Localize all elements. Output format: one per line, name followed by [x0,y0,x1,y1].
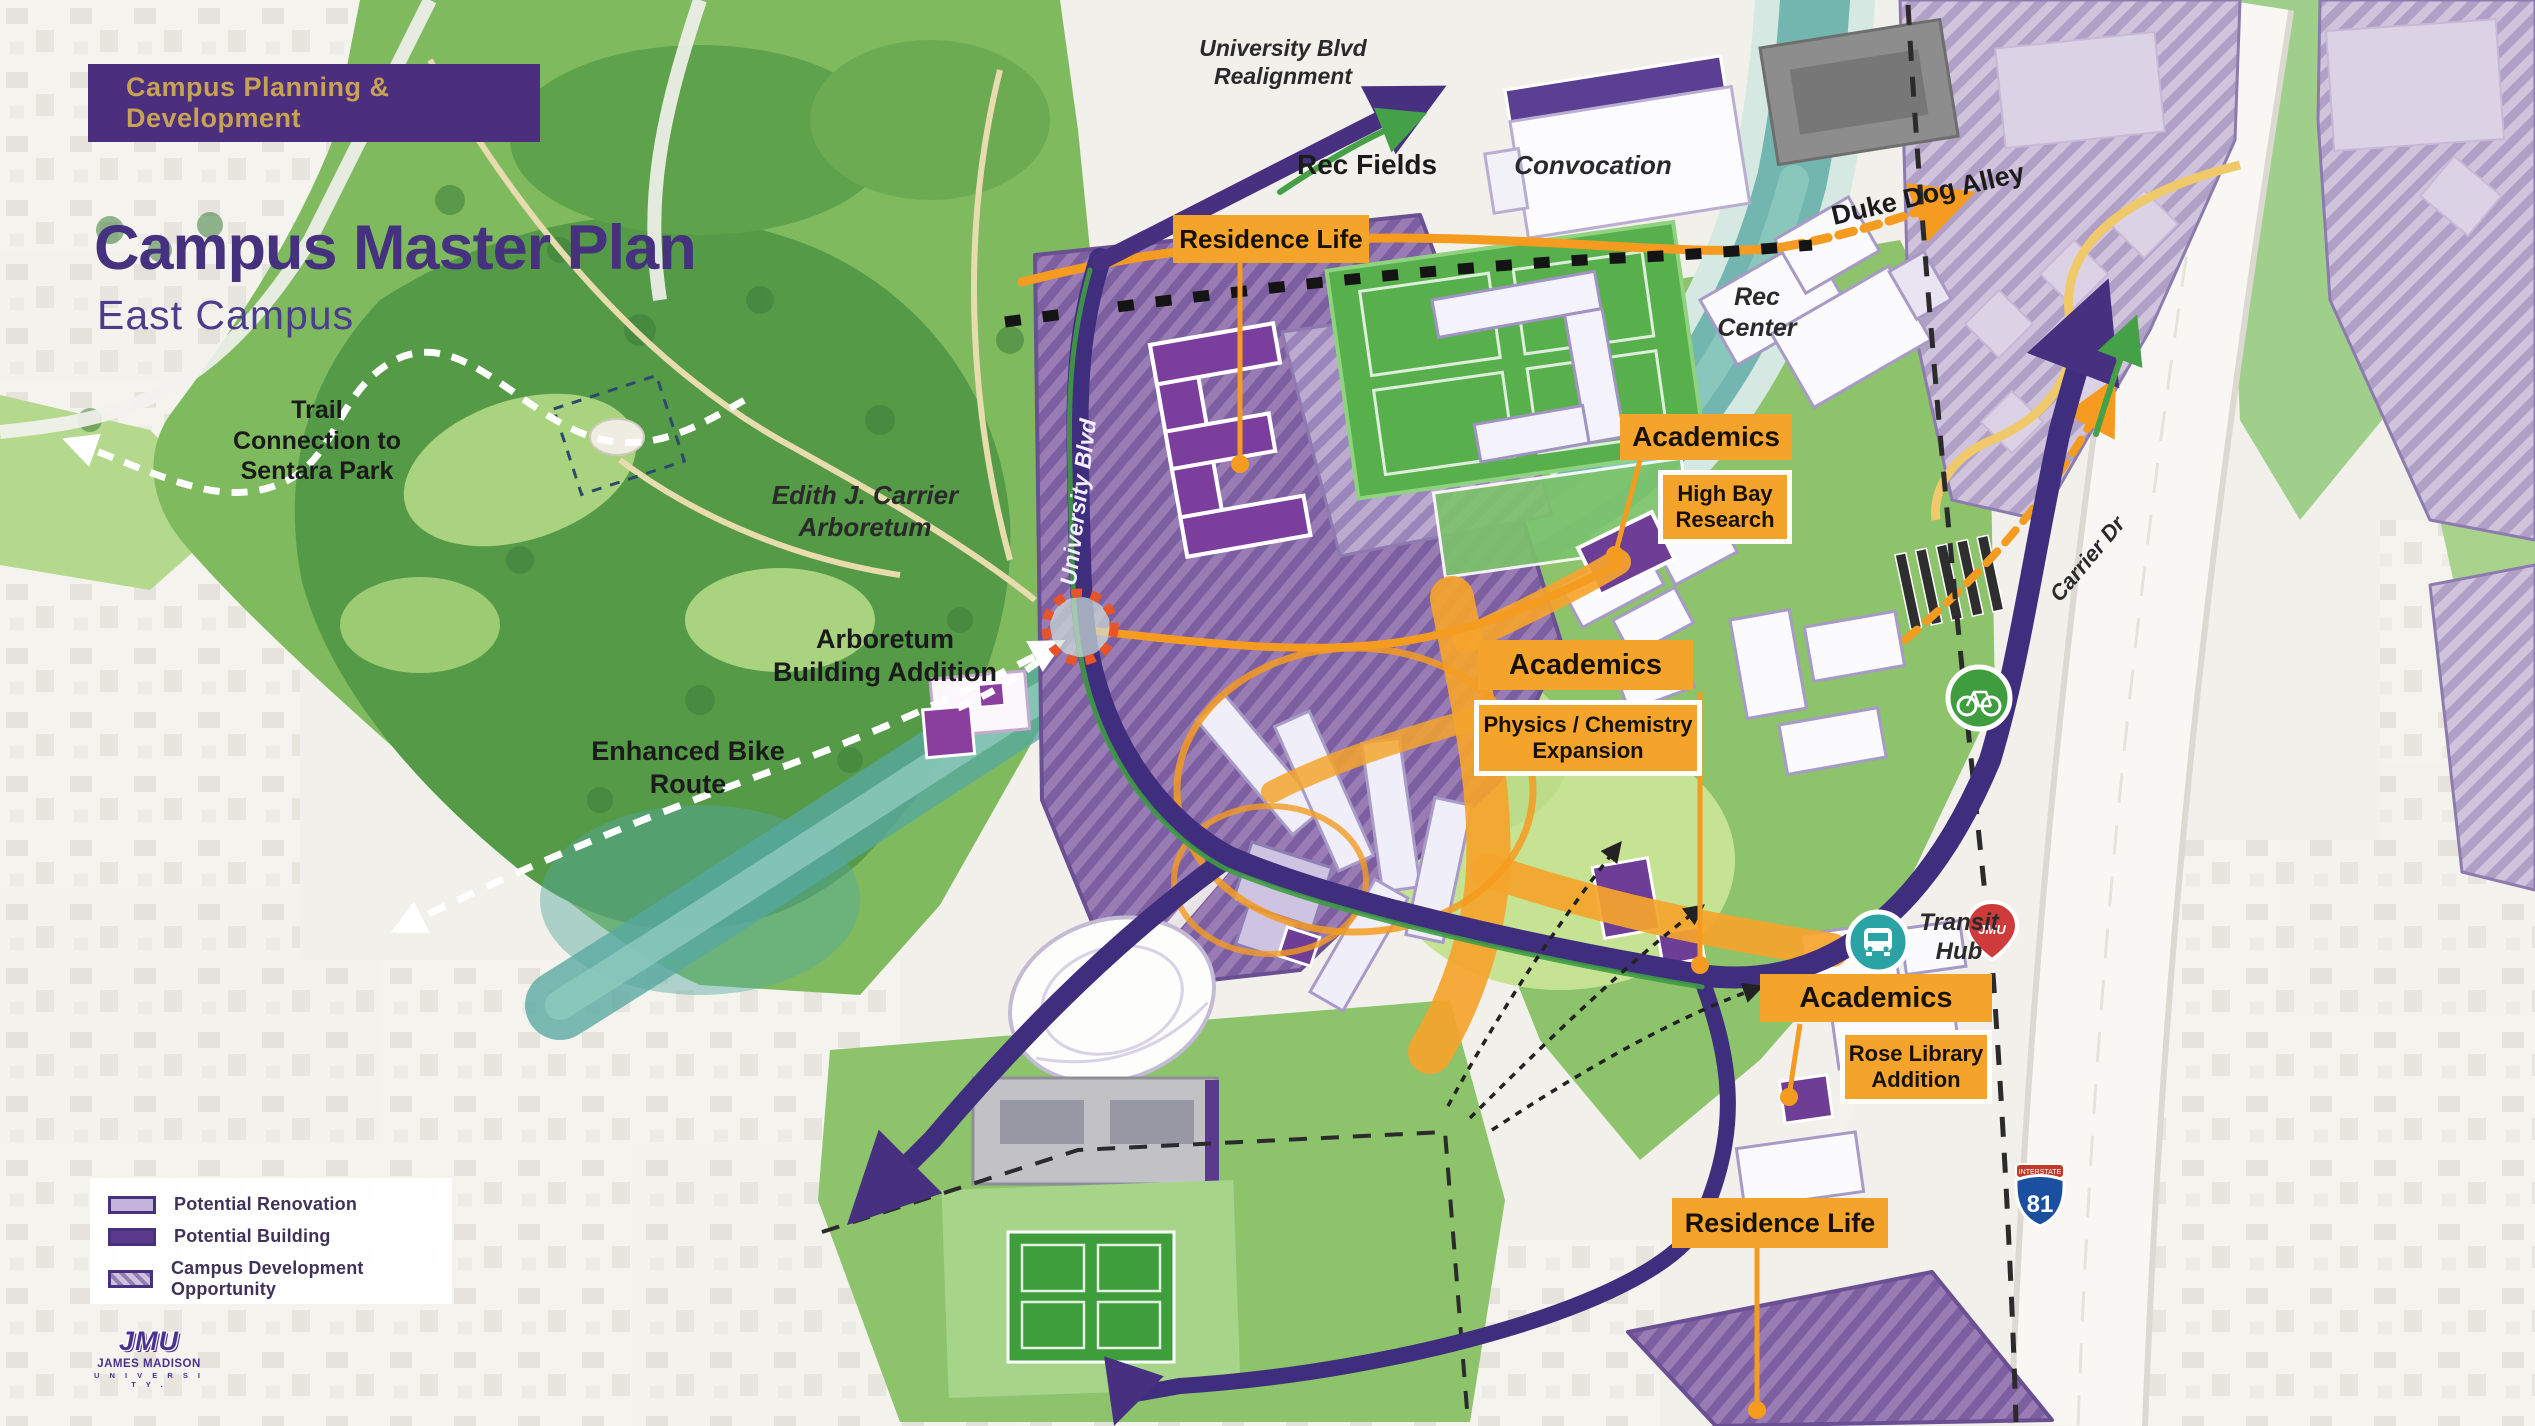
callout-rose-library-addition: Rose Library Addition [1840,1030,1992,1104]
label-trail-connection: Trail Connection to Sentara Park [177,395,457,487]
label-rec-center: Rec Center [1687,282,1827,343]
jmu-logo-acronym: JMU [94,1326,204,1357]
callout-academics-physics: Academics [1478,640,1693,690]
legend-label: Potential Renovation [174,1194,357,1215]
page-title: Campus Master Plan [94,212,696,284]
callout-academics-rose: Academics [1760,974,1992,1022]
label-enhanced-bike-route: Enhanced Bike Route [548,735,828,801]
legend: Potential Renovation Potential Building … [90,1178,452,1304]
department-banner: Campus Planning & Development [88,64,540,142]
callout-residence-life-north: Residence Life [1173,215,1369,263]
label-university-blvd-realignment: University Blvd Realignment [1163,34,1403,90]
legend-label: Campus Development Opportunity [171,1258,452,1300]
label-convocation: Convocation [1493,150,1693,182]
legend-item-potential-building: Potential Building [108,1226,452,1247]
legend-label: Potential Building [174,1226,331,1247]
label-transit-hub: Transit Hub [1904,908,2014,967]
legend-item-development-opportunity: Campus Development Opportunity [108,1258,452,1300]
rec-fields-south [941,1180,1240,1398]
jmu-logo: JMU JAMES MADISON U N I V E R S I T Y . [94,1326,204,1389]
svg-text:81: 81 [2027,1191,2054,1218]
parking-deck [973,1078,1219,1184]
legend-swatch-building [108,1228,156,1246]
legend-swatch-renovation [108,1196,156,1214]
callout-academics-high-bay: Academics [1620,414,1792,460]
bike-route-icon [1948,667,2010,729]
jmu-logo-name: JAMES MADISON [94,1358,204,1370]
page-subtitle: East Campus [97,292,354,339]
transit-hub-icon [1848,912,1908,972]
callout-physics-chemistry-expansion: Physics / Chemistry Expansion [1474,700,1702,776]
legend-swatch-opportunity [108,1270,153,1288]
jmu-logo-university: U N I V E R S I T Y . [94,1371,204,1389]
campus-master-plan-poster: JMU INTERSTATE 81 Campus Planning & Deve… [0,0,2535,1426]
legend-item-potential-renovation: Potential Renovation [108,1194,452,1215]
label-arboretum: Edith J. Carrier Arboretum [725,480,1005,543]
label-rec-fields: Rec Fields [1267,148,1467,182]
callout-residence-life-south: Residence Life [1672,1198,1888,1248]
label-arboretum-addition: Arboretum Building Addition [705,623,1065,689]
callout-high-bay-research: High Bay Research [1658,470,1792,544]
